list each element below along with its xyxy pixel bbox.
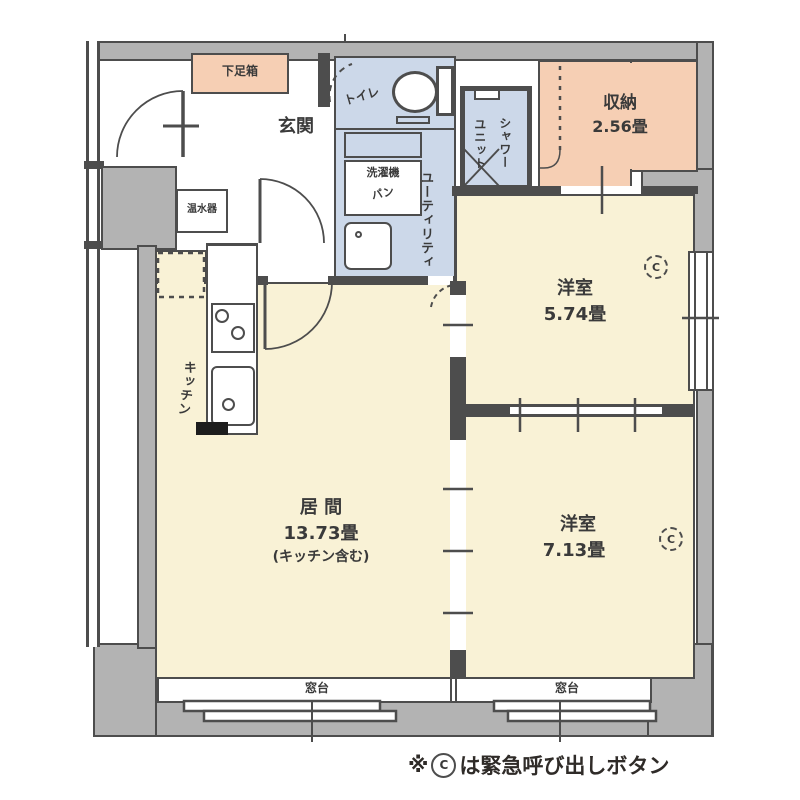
bottom-window-right-pane1 (494, 701, 650, 711)
western-room-2-call-button: C (659, 527, 683, 551)
genkan-door-arc (260, 179, 324, 243)
window-sill-right-label: 窓台 (544, 682, 590, 696)
footer-call-button-icon: C (431, 753, 456, 778)
shower-label-left: ユニット (472, 104, 486, 184)
bottom-window-left-pane2 (204, 711, 396, 721)
shower-label-right: シャワー (497, 102, 511, 184)
entrance-door-arc (117, 91, 183, 157)
closet-label: 収納 (588, 94, 652, 114)
utility-door-dash (431, 285, 453, 307)
western-room-1-call-button: C (644, 255, 668, 279)
floor-plan: 下足箱 玄関 トイレ 温水器 洗濯機 パン ユーティリティ シャワー ユニット … (0, 0, 800, 800)
living-room-label: 居 間 (283, 498, 359, 519)
footer-note: ※ C は緊急呼び出しボタン (408, 750, 738, 780)
window-sill-left-label: 窓台 (294, 682, 340, 696)
living-room-size: 13.73畳 (271, 524, 371, 545)
footer-prefix: ※ (408, 753, 428, 777)
genkan-label: 玄関 (264, 117, 328, 138)
western-room-2-size: 7.13畳 (534, 541, 614, 562)
plan-lines-overlay (0, 0, 800, 800)
bottom-window-left-pane1 (184, 701, 380, 711)
closet-partition-curve (538, 150, 560, 168)
western-room-1-label: 洋室 (543, 279, 607, 300)
living-room-note: (キッチン含む) (247, 549, 395, 565)
shoe-box-label: 下足箱 (196, 65, 284, 79)
fridge-space-dash (158, 253, 204, 297)
western-room-2-label: 洋室 (546, 515, 610, 536)
washer-pan-label-1: 洗濯機 (347, 167, 419, 180)
bottom-window-right-pane2 (508, 711, 656, 721)
footer-text: は緊急呼び出しボタン (459, 750, 669, 780)
utility-label: ユーティリティ (417, 136, 432, 304)
living-door-arc (265, 282, 332, 349)
closet-size: 2.56畳 (582, 118, 658, 136)
water-heater-label: 温水器 (178, 204, 226, 216)
western-room-1-size: 5.74畳 (535, 305, 615, 326)
